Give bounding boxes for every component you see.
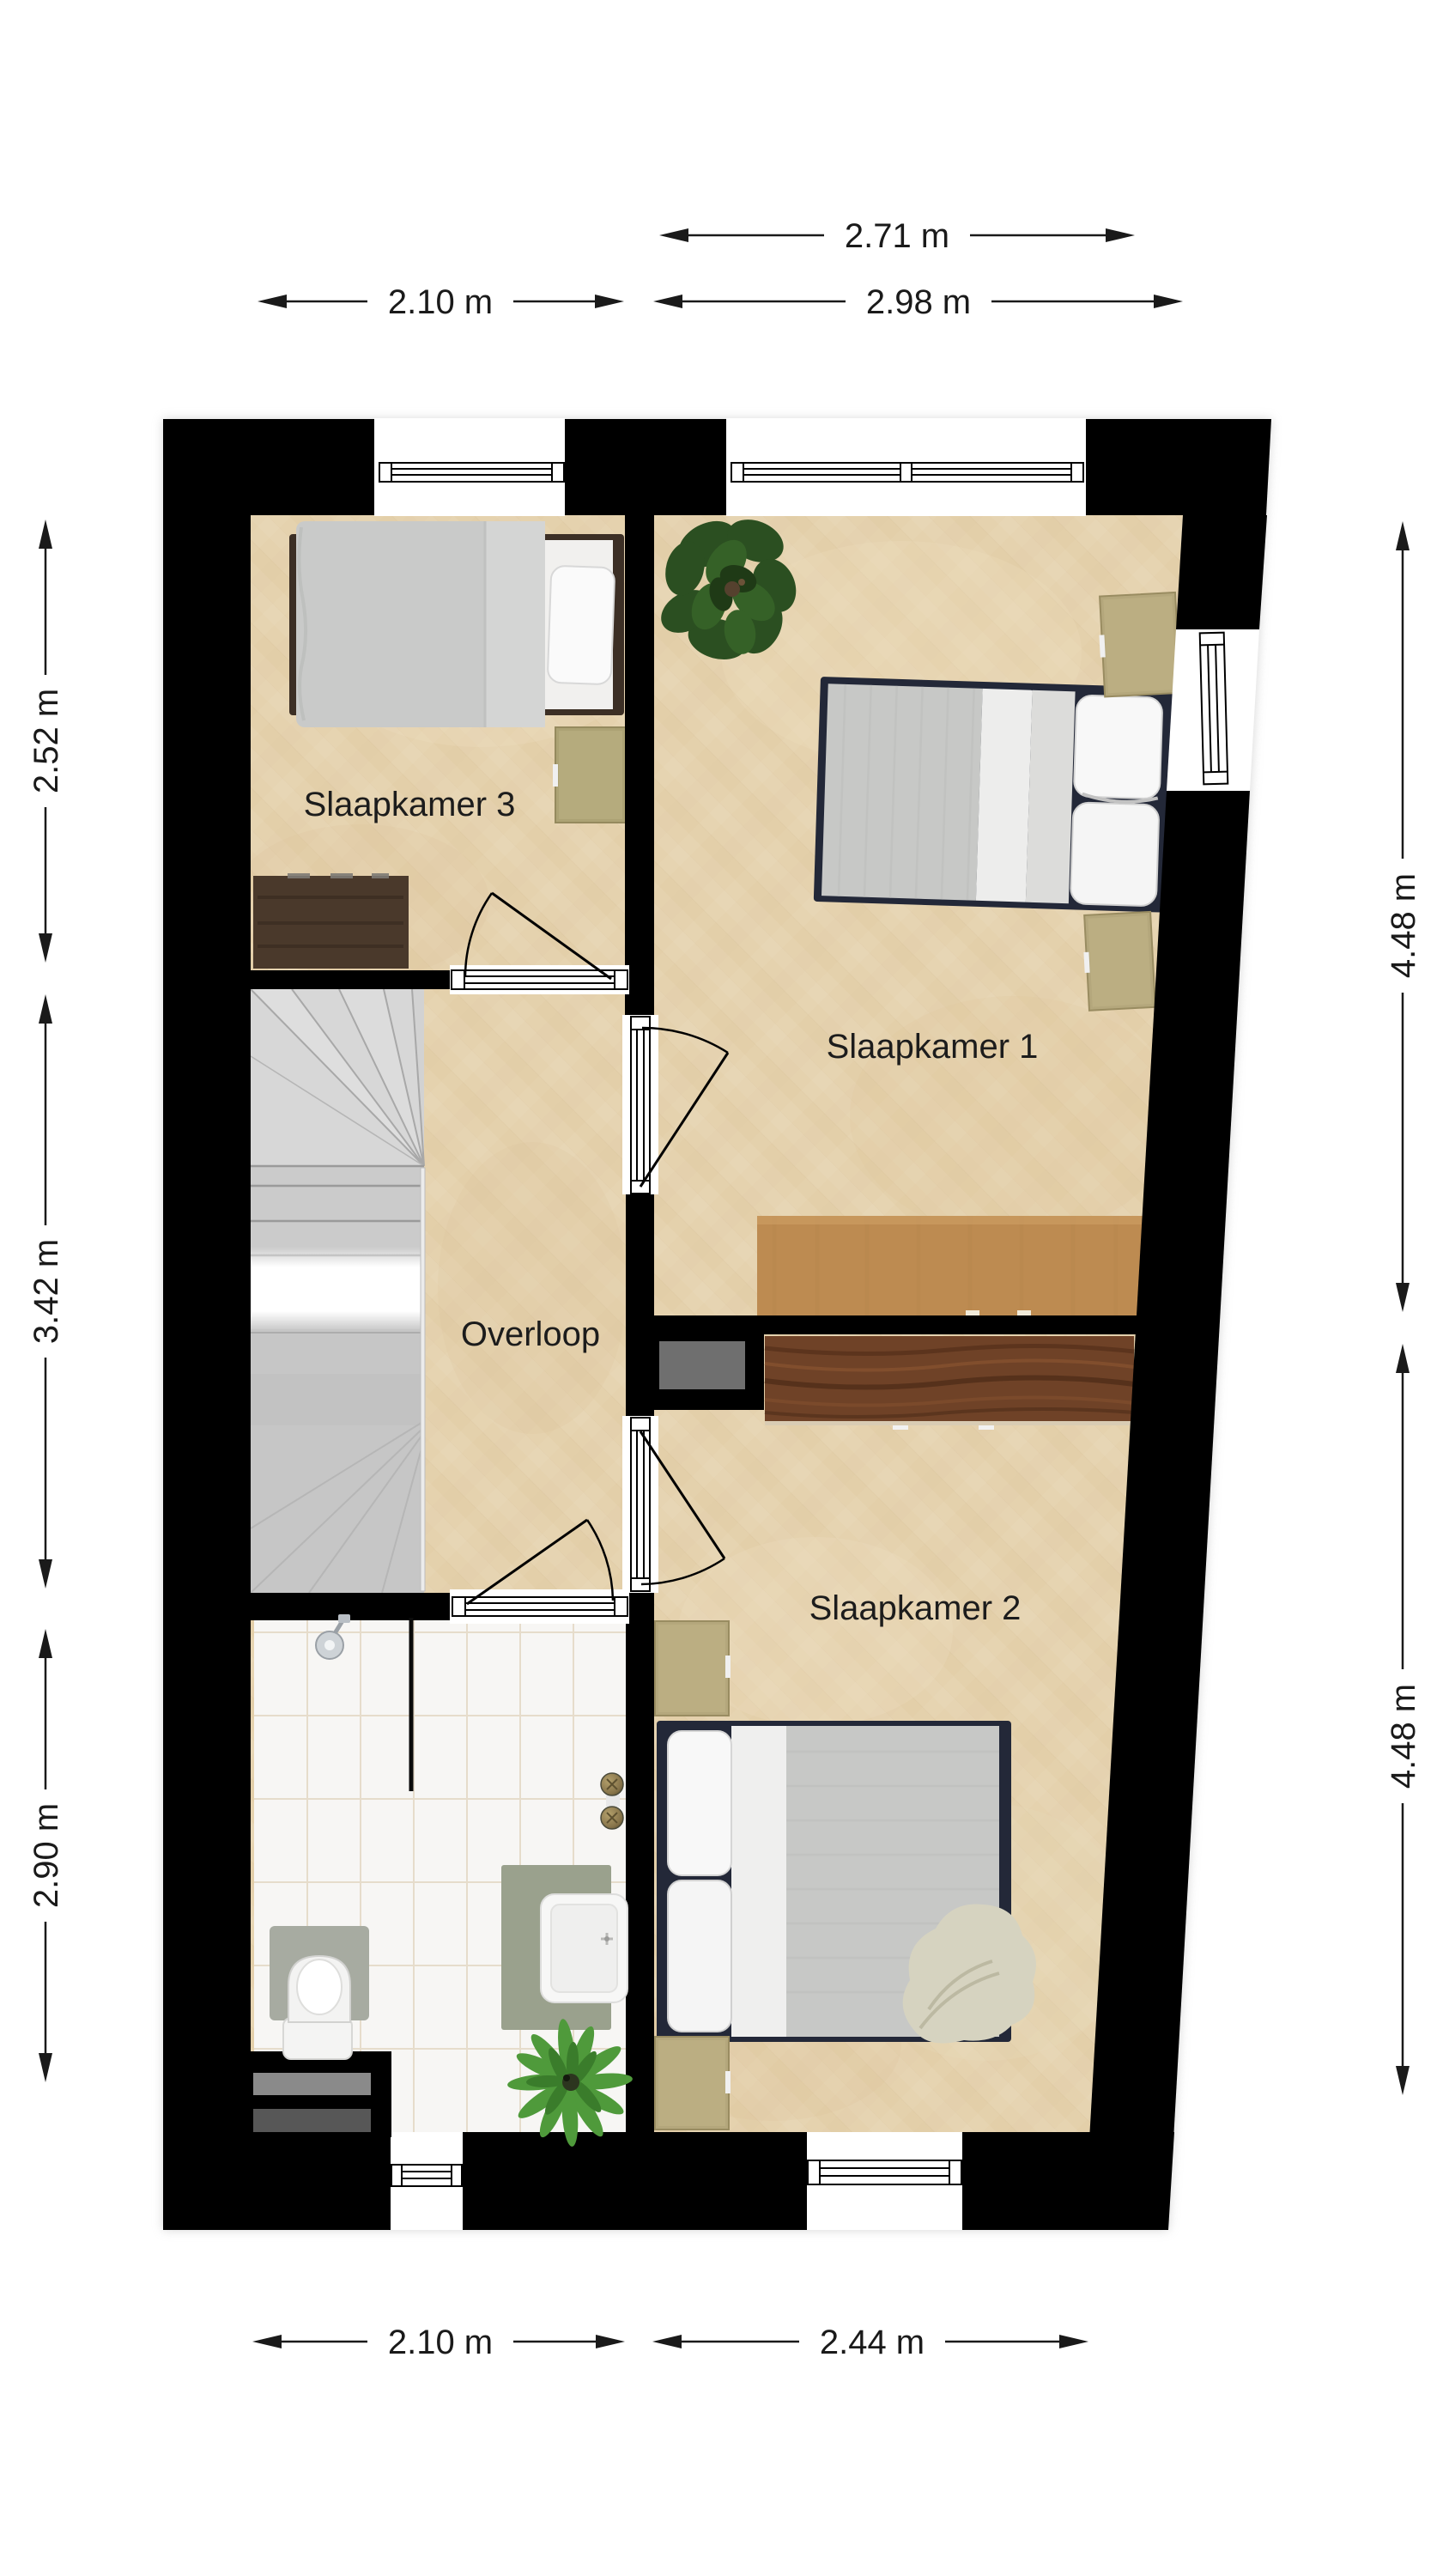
svg-text:3.42 m: 3.42 m xyxy=(27,1239,65,1344)
svg-text:Slaapkamer 1: Slaapkamer 1 xyxy=(827,1028,1039,1066)
svg-text:2.71 m: 2.71 m xyxy=(845,217,949,255)
svg-text:4.48 m: 4.48 m xyxy=(1385,1684,1422,1789)
svg-text:2.90 m: 2.90 m xyxy=(27,1803,65,1908)
svg-text:4.48 m: 4.48 m xyxy=(1385,873,1422,978)
svg-text:Overloop: Overloop xyxy=(461,1315,600,1353)
svg-text:2.10 m: 2.10 m xyxy=(388,283,493,321)
svg-text:2.10 m: 2.10 m xyxy=(388,2324,493,2361)
svg-text:2.52 m: 2.52 m xyxy=(27,689,65,793)
svg-text:2.44 m: 2.44 m xyxy=(820,2324,925,2361)
svg-text:Slaapkamer 2: Slaapkamer 2 xyxy=(809,1589,1022,1627)
svg-text:Slaapkamer 3: Slaapkamer 3 xyxy=(304,786,516,823)
svg-text:2.98 m: 2.98 m xyxy=(866,283,971,321)
